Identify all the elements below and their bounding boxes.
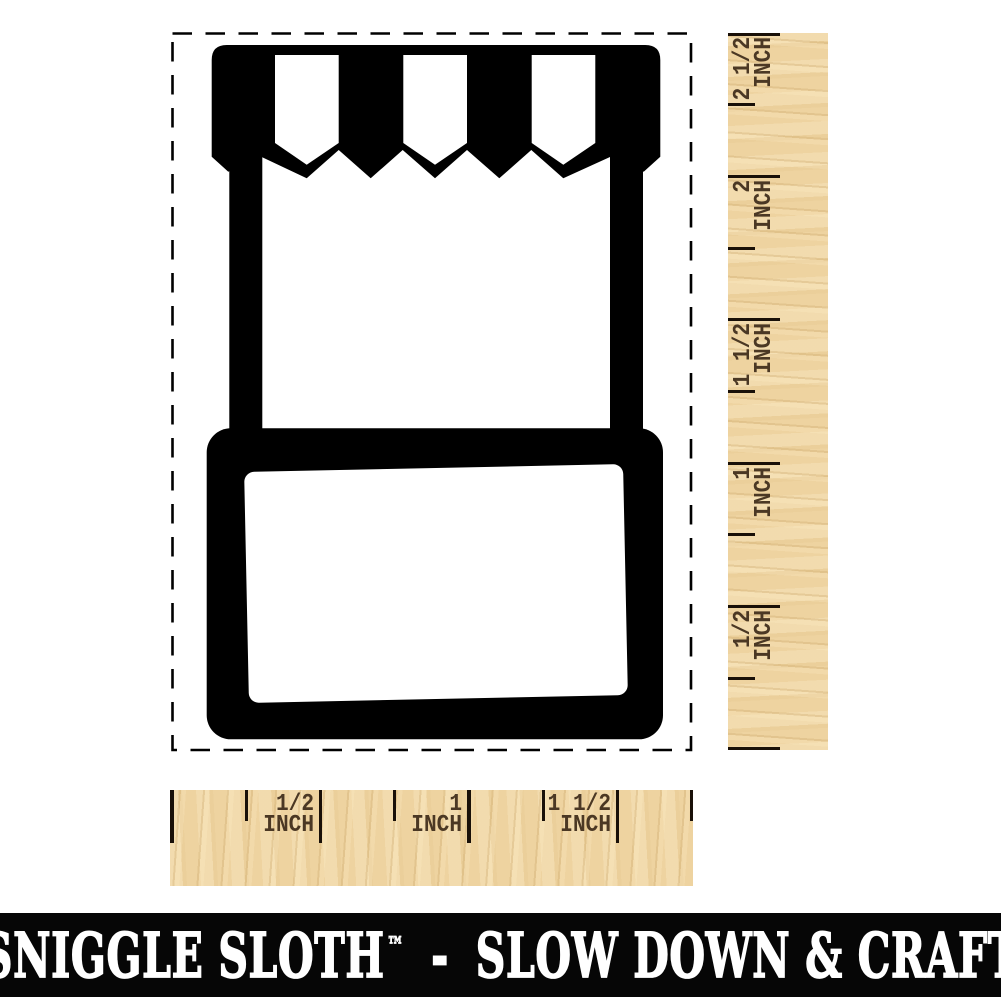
pole-right [610, 150, 643, 440]
ruler-label: 1/2INCH [182, 794, 314, 836]
ruler-tick-half-inch [728, 175, 780, 178]
ruler-label: 1INCH [330, 794, 462, 836]
product-image: 1/2INCH1INCH1 1/2INCH2INCH2 1/2INCH 1/2I… [0, 0, 1001, 999]
ruler-label-line: INCH [330, 815, 462, 836]
ruler-tick-quarter-inch [690, 790, 693, 821]
ruler-tick-half-inch [319, 790, 322, 843]
horizontal-inch-ruler: 1/2INCH1INCH1 1/2INCH [170, 790, 693, 886]
brand-bar: SNIGGLE SLOTH™ - SLOW DOWN & CRAFT [0, 913, 1001, 997]
ruler-label-line: INCH [479, 815, 611, 836]
ruler-label: 2INCH [733, 180, 775, 312]
brand-line: SNIGGLE SLOTH™ - SLOW DOWN & CRAFT [0, 919, 1001, 992]
pole-left [229, 150, 262, 440]
tagline: SLOW DOWN & CRAFT [475, 919, 1001, 992]
ruler-tick-half-inch [728, 605, 780, 608]
trademark-symbol: ™ [386, 932, 404, 962]
ruler-tick-half-inch [728, 747, 780, 750]
vertical-inch-ruler: 1/2INCH1INCH1 1/2INCH2INCH2 1/2INCH [728, 33, 828, 750]
ruler-label: 1 1/2INCH [733, 323, 775, 455]
market-stand-stamp-icon [207, 45, 663, 739]
awning-stripe-1 [275, 55, 339, 165]
brand-name: SNIGGLE SLOTH [0, 919, 384, 992]
ruler-tick-half-inch [728, 462, 780, 465]
ruler-label: 1 1/2INCH [479, 794, 611, 836]
ruler-label-line: INCH [754, 467, 775, 599]
ruler-tick-half-inch [728, 33, 780, 36]
ruler-label-line: INCH [754, 37, 775, 169]
ruler-tick-half-inch [170, 790, 173, 843]
awning-stripe-3 [532, 55, 596, 165]
ruler-label: 2 1/2INCH [733, 37, 775, 169]
ruler-tick-half-inch [616, 790, 619, 843]
awning-stripe-2 [403, 55, 467, 165]
ruler-label: 1INCH [733, 467, 775, 599]
ruler-label-line: INCH [182, 815, 314, 836]
ruler-label: 1/2INCH [733, 610, 775, 742]
ruler-tick-half-inch [728, 318, 780, 321]
ruler-label-line: INCH [754, 180, 775, 312]
ruler-tick-half-inch [467, 790, 470, 843]
separator: - [431, 919, 449, 992]
counter-opening [244, 464, 628, 703]
ruler-label-line: INCH [754, 323, 775, 455]
ruler-label-line: INCH [754, 610, 775, 742]
